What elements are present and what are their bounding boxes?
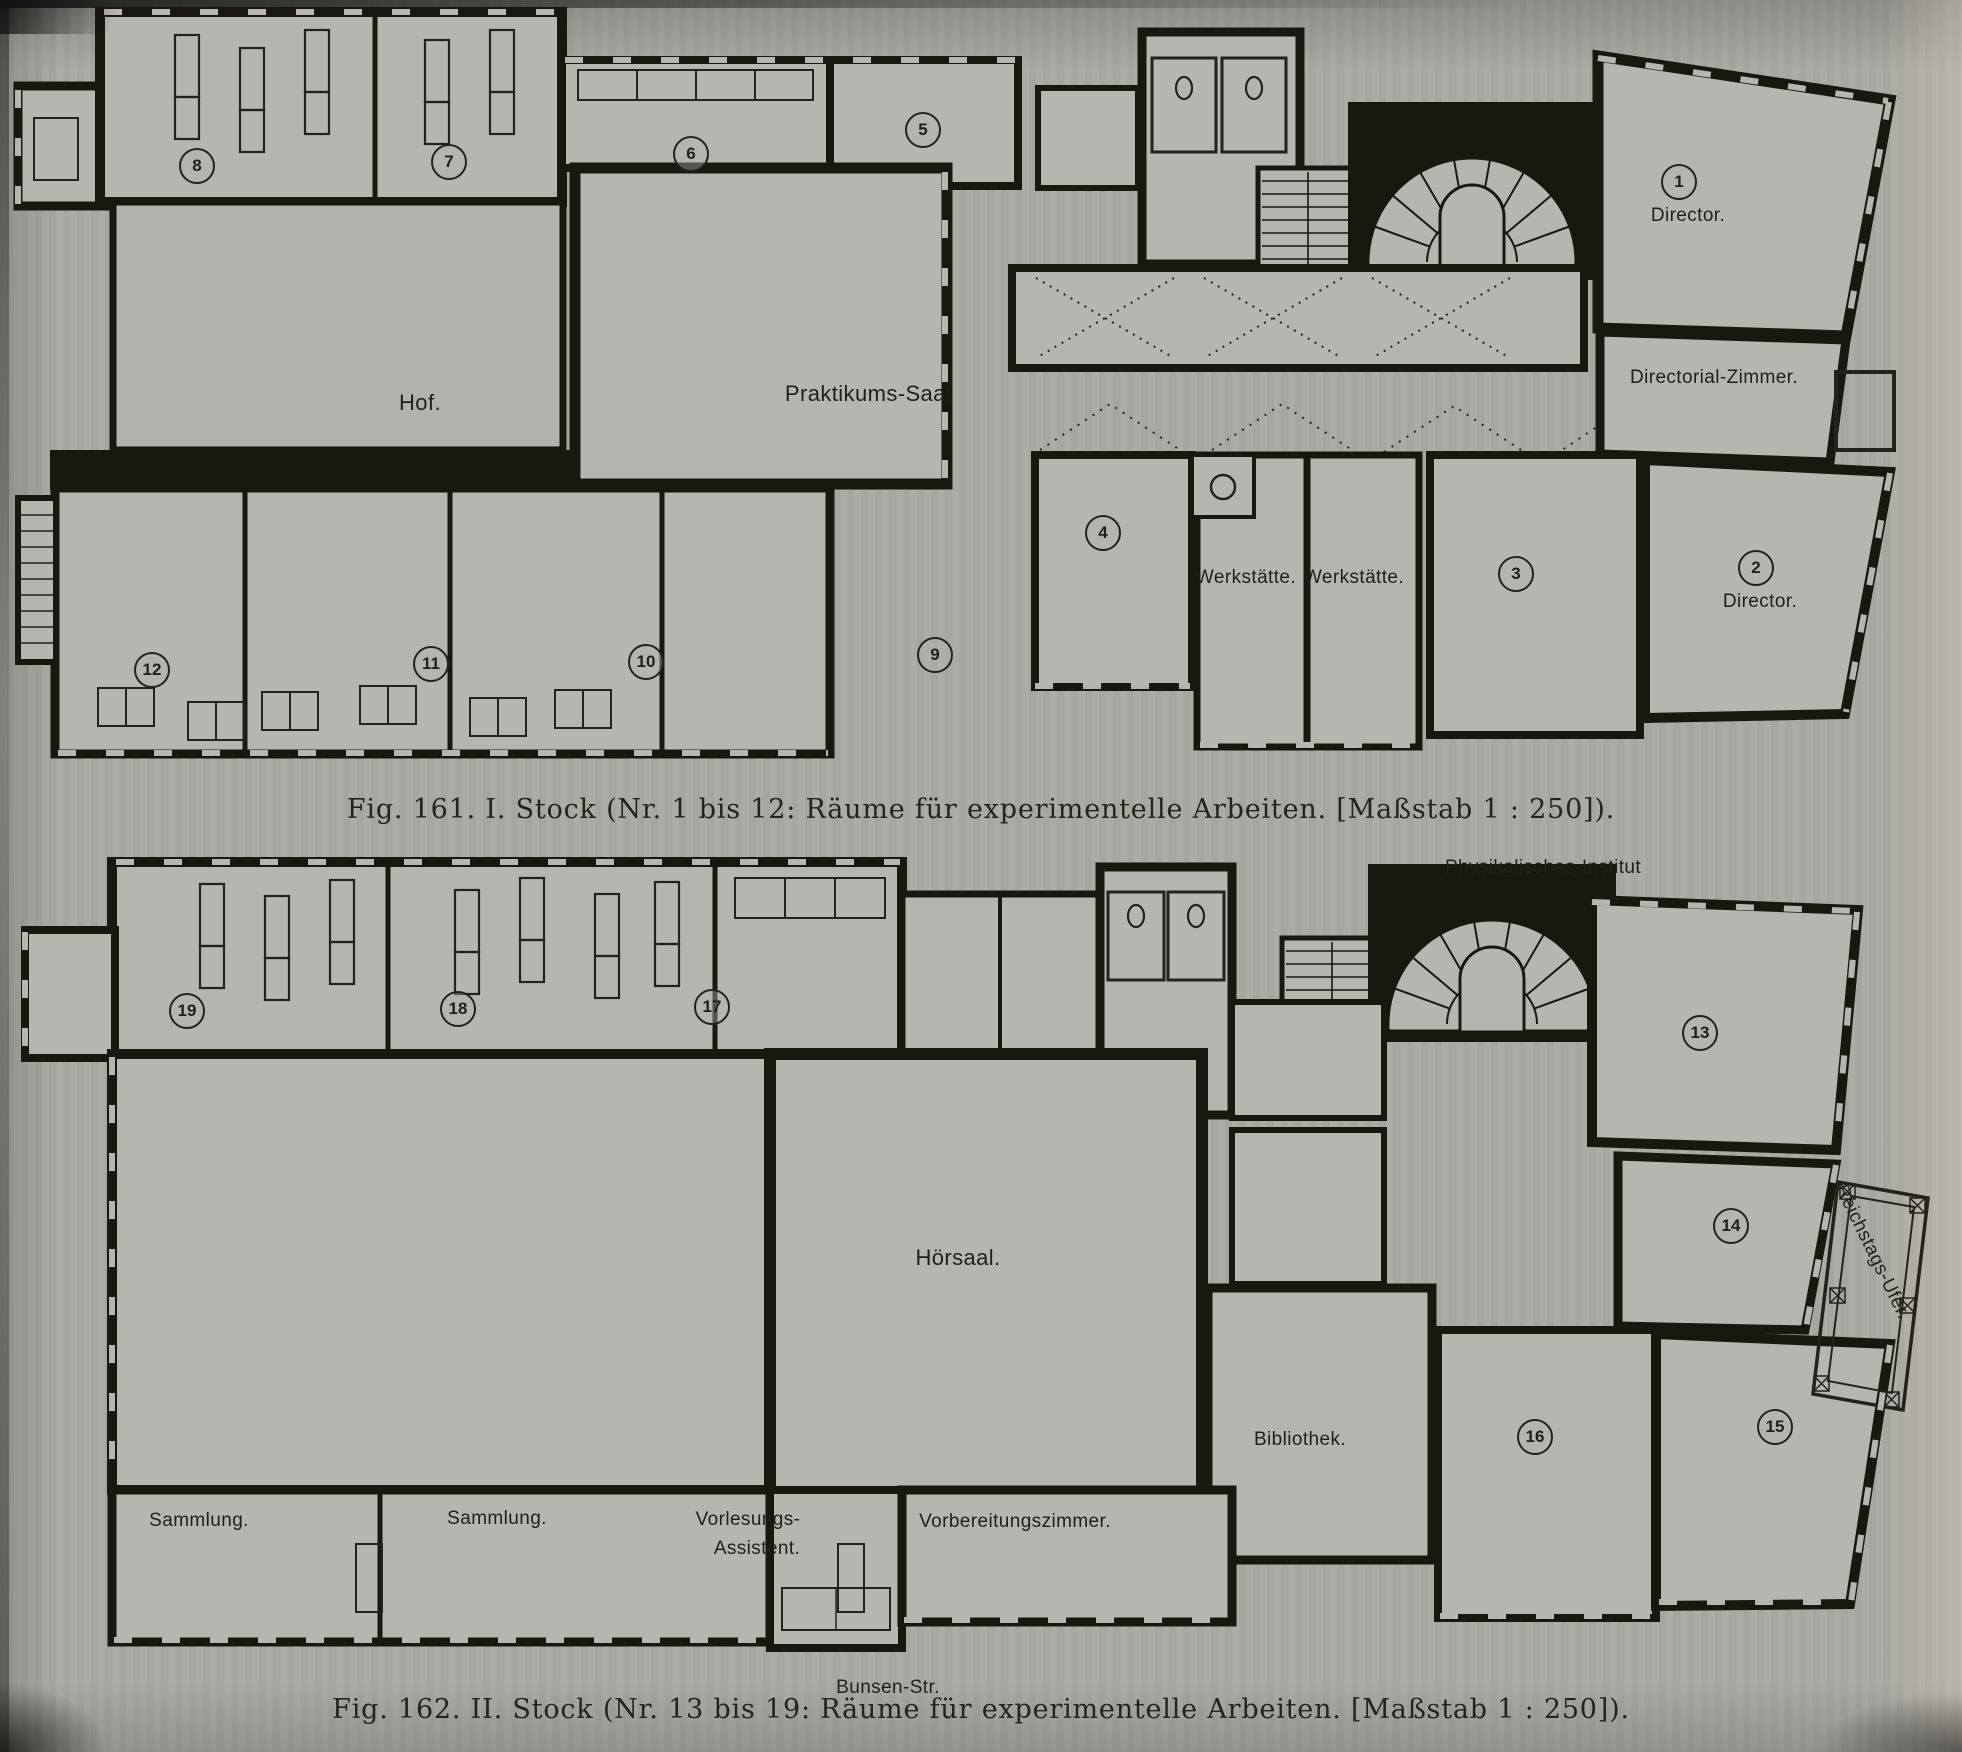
scanned-page: 87651Director.Directorial-Zimmer.Hof.Pra… (0, 0, 1962, 1752)
figure-162-caption: Fig. 162. II. Stock (Nr. 13 bis 19: Räum… (0, 1694, 1962, 1725)
scan-edge-left (0, 0, 9, 1752)
floor-plan-161-drawing (0, 0, 1962, 800)
scan-edge-top (0, 0, 1962, 8)
figure-161-caption: Fig. 161. I. Stock (Nr. 1 bis 12: Räume … (0, 794, 1962, 825)
scan-shadow-bottom-left (0, 1682, 110, 1752)
scan-shadow-bottom-right (1812, 1692, 1962, 1752)
scan-shadow-top-left (0, 0, 160, 34)
floor-plan-162-drawing (0, 852, 1962, 1752)
